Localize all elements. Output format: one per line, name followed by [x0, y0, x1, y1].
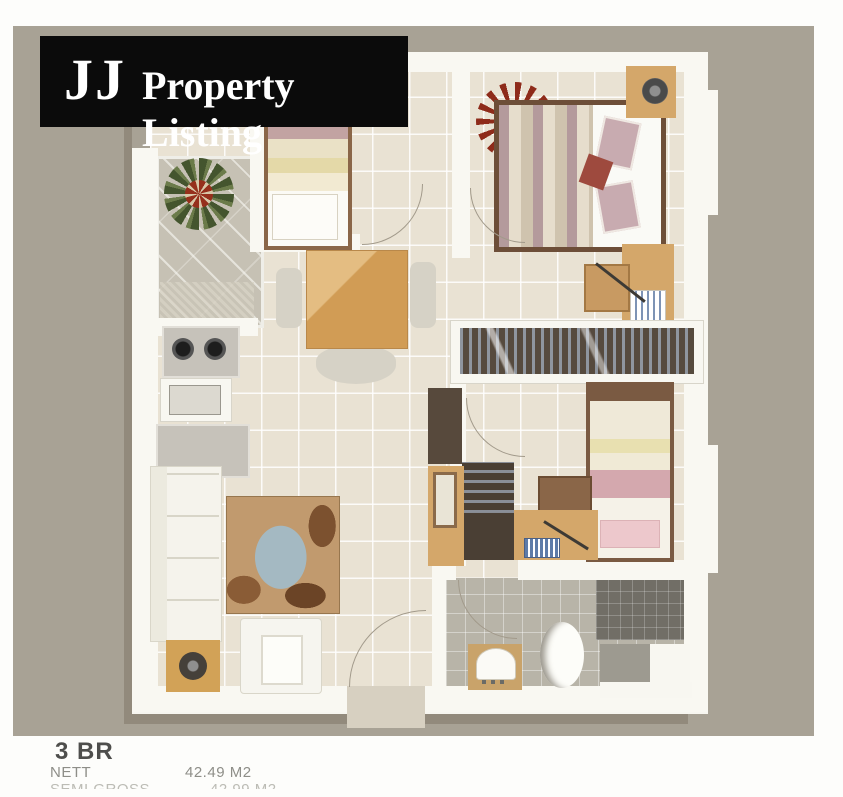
bathroom-vanity [468, 644, 522, 690]
bedroom2-bed [586, 382, 674, 562]
bed-pillow [600, 520, 660, 548]
burner-icon [204, 338, 226, 360]
nett-area-value: 42.49 M2 [185, 764, 252, 781]
sink-basin [169, 385, 221, 415]
dining-table [306, 250, 408, 349]
unit-type-label: 3 BR [55, 738, 114, 766]
tv-cabinet [428, 388, 462, 464]
stove [162, 326, 240, 378]
toilet [540, 622, 584, 688]
wall [432, 560, 446, 712]
wardrobe [460, 328, 694, 374]
dining-chair [276, 268, 302, 328]
armchair-seat [261, 635, 303, 685]
dining-chair [410, 262, 436, 328]
table-lamp-icon [179, 652, 207, 680]
desk-books [524, 538, 560, 558]
bed-blanket [590, 470, 670, 498]
balcony-gravel [160, 282, 254, 318]
console-cabinet [428, 466, 464, 566]
burner-icon [172, 338, 194, 360]
wall [518, 560, 698, 580]
plant-flower [185, 180, 213, 208]
property-listing-image: JJ Property Listing 3 BR NETT 42.49 M2 S… [0, 0, 843, 797]
lamp-icon [642, 78, 668, 104]
sofa-cushions [167, 467, 219, 641]
nett-label: NETT [50, 764, 91, 781]
brand-logo: JJ [64, 36, 126, 124]
side-table [166, 640, 220, 692]
wall [708, 445, 718, 573]
shower-tray [600, 644, 650, 682]
bed-pillow [272, 194, 338, 240]
armchair [240, 618, 322, 694]
nightstand [626, 66, 676, 118]
shower-area [596, 578, 686, 640]
bed-blanket [590, 439, 670, 453]
sofa [150, 466, 222, 642]
wall [452, 52, 470, 258]
dining-chair [316, 346, 396, 384]
bed-headboard [590, 386, 670, 401]
picture-frame [433, 472, 457, 528]
plant-icon [164, 158, 234, 230]
bathroom-sink [476, 648, 516, 680]
bed-blanket [268, 173, 348, 191]
bookshelf [462, 462, 514, 560]
area-rug [226, 496, 340, 614]
semi-gross-value: 42.99 M2 [210, 781, 277, 789]
bed-blanket [590, 401, 670, 439]
footer: 3 BR NETT 42.49 M2 SEMI GROSS 42.99 M2 [0, 736, 843, 797]
sink-taps [482, 680, 508, 684]
bed-blanket [268, 158, 348, 174]
brand-banner: JJ Property Listing [40, 36, 408, 127]
semi-gross-label: SEMI GROSS [50, 781, 150, 789]
shower-partition [600, 682, 692, 698]
semi-gross-row-clipped: SEMI GROSS 42.99 M2 [50, 781, 310, 789]
bed-blanket [590, 453, 670, 470]
entry-opening [347, 686, 425, 728]
sofa-back [151, 467, 167, 641]
banner-title: Property Listing [142, 62, 408, 156]
kitchen-sink [160, 378, 232, 422]
wall [708, 90, 718, 215]
